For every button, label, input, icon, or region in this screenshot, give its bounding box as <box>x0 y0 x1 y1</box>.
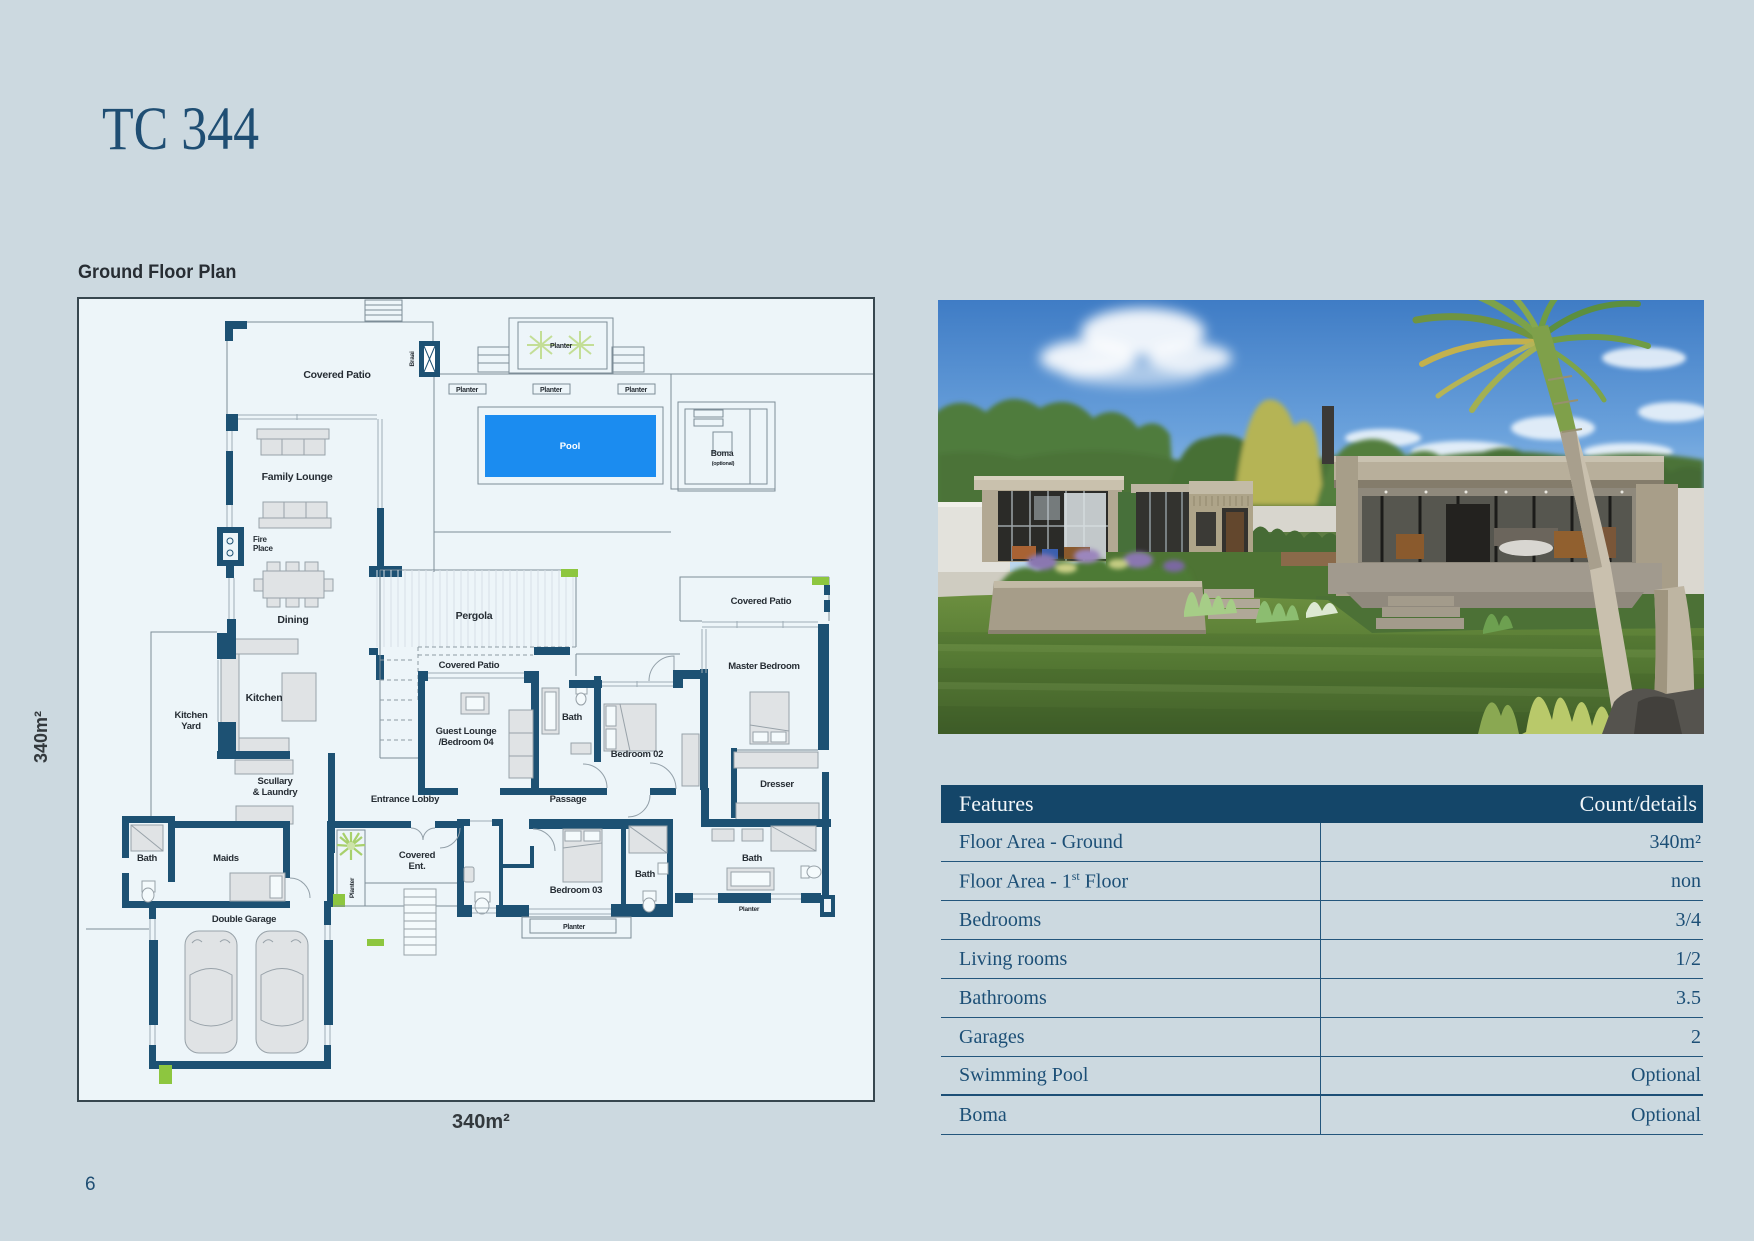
svg-text:Bedroom 03: Bedroom 03 <box>550 885 602 896</box>
svg-text:& Laundry: & Laundry <box>253 787 299 798</box>
svg-text:Kitchen: Kitchen <box>246 692 283 704</box>
svg-text:Guest Lounge: Guest Lounge <box>436 726 497 737</box>
svg-text:Bath: Bath <box>742 853 763 864</box>
svg-text:Covered Patio: Covered Patio <box>731 596 792 607</box>
svg-text:Braai: Braai <box>409 351 416 366</box>
svg-text:Entrance Lobby: Entrance Lobby <box>371 794 440 805</box>
svg-text:Covered Patio: Covered Patio <box>303 369 370 381</box>
svg-text:Ent.: Ent. <box>409 861 426 872</box>
svg-text:Planter: Planter <box>456 387 479 394</box>
svg-text:Fire: Fire <box>253 535 267 544</box>
svg-text:Planter: Planter <box>349 877 356 898</box>
svg-text:Dresser: Dresser <box>760 779 794 790</box>
svg-text:Covered Patio: Covered Patio <box>439 660 500 671</box>
svg-text:Covered: Covered <box>399 850 436 861</box>
svg-text:Yard: Yard <box>181 721 201 732</box>
svg-text:Dining: Dining <box>277 614 308 626</box>
svg-text:Planter: Planter <box>550 343 573 350</box>
svg-text:Bath: Bath <box>562 712 583 723</box>
svg-text:Double Garage: Double Garage <box>212 914 276 925</box>
svg-text:Maids: Maids <box>213 853 239 864</box>
svg-text:Bedroom 02: Bedroom 02 <box>611 749 663 760</box>
svg-text:Planter: Planter <box>563 924 586 931</box>
svg-text:Bath: Bath <box>137 853 158 864</box>
svg-text:Passage: Passage <box>550 794 587 805</box>
svg-text:/Bedroom 04: /Bedroom 04 <box>439 737 495 748</box>
svg-text:Place: Place <box>253 544 273 553</box>
svg-text:Master Bedroom: Master Bedroom <box>728 661 799 672</box>
svg-text:Pool: Pool <box>560 441 581 452</box>
svg-text:Bath: Bath <box>635 869 656 880</box>
svg-text:Planter: Planter <box>625 387 648 394</box>
svg-text:Pergola: Pergola <box>456 610 493 622</box>
svg-text:Kitchen: Kitchen <box>174 710 208 721</box>
svg-text:Planter: Planter <box>540 387 563 394</box>
svg-text:Boma: Boma <box>711 448 734 458</box>
svg-text:Family Lounge: Family Lounge <box>262 471 333 483</box>
svg-text:Scullary: Scullary <box>258 776 294 787</box>
svg-text:Planter: Planter <box>739 906 760 913</box>
svg-text:(optional): (optional) <box>712 461 735 467</box>
